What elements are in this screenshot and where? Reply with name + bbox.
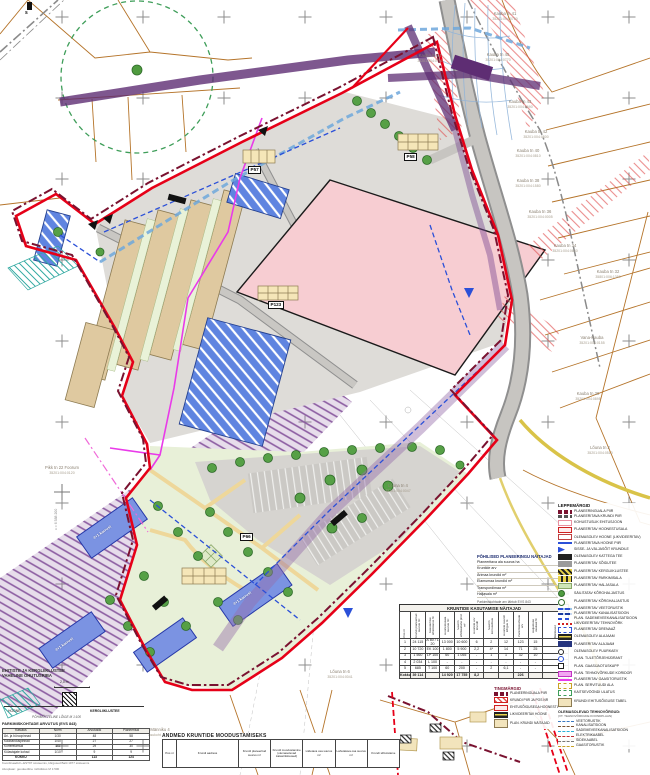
legend-label: PLANEERITAV DRENAAŽ	[574, 628, 615, 632]
usage-table: Pos nr Krundi planeeritud suurus m² Kasu…	[399, 611, 569, 679]
line-type-icon	[558, 746, 574, 747]
legend-row: PLANEERITAV GAASITORUSTIK	[558, 678, 650, 682]
legend-row: OLEMASOLEV HOONE (LIKVIDEERITAV)	[558, 534, 650, 540]
legend-swatch-icon	[558, 542, 572, 544]
line-type-icon	[558, 731, 574, 732]
stats-label: Transpordimaa m²	[477, 586, 506, 591]
legend-label: PLANEERITAV HOONESTUSALA	[574, 528, 627, 532]
legend-label: LIKVIDEERITAV TEHNOVÕRK	[574, 622, 623, 626]
stats-label: Kruntide arv	[477, 566, 496, 571]
legend-label: PLAN. SERVITUUDI ALA	[574, 684, 614, 688]
section-sketch: 2,0 m HOONE KERGLIIKLUSTEE PÕHIMÕTTELINE…	[2, 680, 152, 720]
legend-label: OLEMASOLEV ALAJAAM	[574, 635, 615, 639]
legend-label: PLANEERITAV GAASITORUSTIK	[574, 678, 627, 682]
legend-label: PLANEERITAV ALAJAAM	[574, 643, 614, 647]
plot-number-chip: P58	[404, 153, 417, 161]
usage-col-header: Parkimiskohtade arv	[513, 612, 528, 639]
legend-row: KRUNDI EHITUSÕIGUSE TABEL	[558, 698, 650, 707]
legend-row: PLANEERITAV HALJASALA	[558, 583, 650, 589]
line-type-icon	[558, 736, 574, 737]
legend-row: PLANEERITAV SÕIDUTEE	[558, 561, 650, 567]
legend-swatch-icon	[494, 712, 508, 718]
legend-label: OLEMASOLEV PUURKAEV	[574, 650, 618, 654]
legend-label: KOHUSTUSLIK EHITUSJOON	[574, 521, 622, 525]
legend-lines-subtitle: (VT. TEHNOVÕRKUDE KOONDPLAAN)	[558, 714, 650, 718]
usage-col-header: Hoonete arv krundil	[469, 612, 484, 639]
parking-table: KasutusNormArvutuslikPlaneeritud Äri- ja…	[2, 728, 150, 761]
ground-line	[4, 706, 144, 707]
legend-label: PLANEERITAV KÕRGHALJASTUS	[574, 600, 629, 604]
legend-swatch-icon	[558, 510, 572, 514]
sketch-caption: PÕHIMÕTTELINE LÕIGE M 1:100	[32, 715, 81, 719]
legend-swatch-icon	[558, 698, 572, 707]
parking-table-title: PARKIMISKOHTADE ARVUTUS (EVS 843)	[2, 722, 154, 726]
line-type-icon	[558, 721, 574, 722]
legend-lines-title: OLEMASOLEVAD TEHNOVÕRGUD:	[558, 710, 650, 714]
plan-sheet: { "colors":{"boundary_red":"#e60018","bo…	[0, 0, 650, 775]
legend-label: PLANEERITAV HALJASALA	[574, 584, 618, 588]
legend-label: KRUNDI EHITUSÕIGUSE TABEL	[574, 700, 627, 704]
usage-col-header: Suurim ehitisealune pind m²	[455, 612, 470, 639]
legend-label: PLANEERITAV SÕIDUTEE	[574, 562, 616, 566]
legend-swatch-icon	[558, 520, 572, 526]
legend-swatch-icon	[558, 554, 572, 560]
legend-label: PLANEERINGUALA PIIR	[510, 692, 547, 695]
formation-col-header: Krundi aadress	[177, 740, 239, 768]
legend-label: PLANEERINGUALA PIIR	[574, 510, 613, 514]
legend-swatch-icon	[558, 627, 572, 633]
usage-col-header: Krundi planeeritud suurus m²	[411, 612, 426, 639]
safety-note-line2: VAHELINE OHUTUSRIBA	[2, 673, 154, 678]
legend-swatch-icon	[558, 527, 572, 533]
legend-swatch-icon	[558, 690, 572, 696]
usage-total-row: Kokku39 11414 92017 7558,2226	[400, 672, 569, 678]
legend-swatch-icon	[558, 576, 572, 582]
legend-label: PLAN. GAASIJAOTUSKAPP	[574, 665, 619, 669]
legend-swatch-icon	[558, 618, 572, 620]
legend-row: PLANEERITAV PARKIMISALA	[558, 576, 650, 582]
line-type-icon	[558, 726, 574, 727]
legend-row: OLEMASOLEV KATTEGA TEE	[558, 554, 650, 560]
legend-row: OLEMASOLEV ALAJAAM	[558, 634, 650, 640]
legend-label: OLEMASOLEV HOONE (LIKVIDEERITAV)	[574, 536, 641, 540]
legend-swatch-icon	[558, 683, 572, 689]
legend-row: PLANEERITAV ALAJAAM	[558, 641, 650, 647]
plot-number-chip: P66	[240, 533, 253, 541]
legend-row: PLAN. SERVITUUDI ALA	[558, 683, 650, 689]
usage-col-header: Kasutamise sihtotstarve %	[425, 612, 440, 639]
legend-swatch-icon	[494, 692, 508, 696]
legend-label: PLANEERITAVA HOONE PIIR	[574, 542, 621, 546]
legend-swatch-icon	[558, 634, 572, 640]
legend-label: OLEMASOLEV KATTEGA TEE	[574, 555, 623, 559]
legend-label: PLANEERITAVA KRUNDI PIIR	[574, 515, 622, 519]
legend-swatch-icon	[558, 561, 572, 567]
legend-swatch-icon	[494, 705, 508, 711]
legend-row: KAITSEVÖÖNDI ULATUS	[558, 690, 650, 696]
plot-number-chip: P123	[268, 301, 284, 309]
legend-row: PLAN. TULETÕRJEHÜDRANT	[558, 656, 650, 662]
legend-label: PLAN. KRUNDI NÄITAJAD	[510, 722, 550, 725]
legend-swatch-icon	[558, 613, 572, 616]
legend-title: LEPPEMÄRGID	[558, 503, 650, 508]
usage-table-title: KRUNTIDE KASUTAMISE NÄITAJAD	[399, 604, 569, 611]
grid-coordinate-label: x = 6 588 200	[54, 509, 58, 530]
formation-col-header: Krundi planeeritud suurus m²	[238, 740, 270, 768]
usage-col-header: Hoonete suurim kõrgus m	[499, 612, 514, 639]
legend-line-row: SIDEKAABEL	[558, 739, 650, 743]
legend-swatch-icon	[558, 671, 572, 677]
legend-label: SISSE- JA VÄLJASÕIT KRUNDILE	[574, 548, 629, 552]
legend-panel: LEPPEMÄRGID PLANEERINGUALA PIIR PLANEERI…	[558, 503, 650, 749]
legend-row: PLANEERITAV KERGLIIKLUSTEE	[558, 569, 650, 575]
legend-label: PLANEERITAV PARKIMISALA	[574, 577, 622, 581]
safety-strip-note-block: EHITISTE JA KERGLIIKLUSTEE VAHELINE OHUT…	[2, 668, 154, 772]
formation-col-header: Krundi sihtotstarve	[367, 740, 399, 768]
legend-label: PLANEERITAV KERGLIIKLUSTEE	[574, 570, 628, 574]
dimension-line	[54, 687, 90, 688]
legend-row: PLANEERITAV DRENAAŽ	[558, 627, 650, 633]
sheet-corner-mark: s	[25, 10, 28, 16]
legend-row: PLANEERITAV KÕRGHALJASTUS	[558, 599, 650, 606]
legend-swatch-icon	[494, 719, 508, 728]
stats-label: Ärimaa krundid m²	[477, 573, 506, 578]
building-hatch-icon	[62, 692, 77, 707]
legend-swatch-icon	[558, 623, 572, 625]
usage-col-header: Hoonestusala suurus m²	[440, 612, 455, 639]
legend-swatch-icon	[558, 534, 572, 540]
plot-usage-table: KRUNTIDE KASUTAMISE NÄITAJAD Pos nr Krun…	[399, 604, 569, 679]
plot-number-chip: P57	[248, 166, 261, 174]
legend-line-row: ELEKTRIKAABEL	[558, 734, 650, 738]
formation-col-header: Krundi moodustamine (olemasolevad katast…	[271, 740, 303, 768]
plot-formation-table: ANDMED KRUNTIDE MOODUSTAMISEKS Pos nrKru…	[162, 733, 400, 768]
legend-swatch-icon	[558, 649, 564, 655]
legend-label: KAITSEVÖÖNDI ULATUS	[574, 691, 615, 695]
legend-swatch-icon	[558, 547, 565, 553]
legend-row: PLANEERITAV HOONESTUSALA	[558, 527, 650, 533]
legend-row: PLAN. TEHNOVÕRKUDE KORIDOR	[558, 671, 650, 677]
legend-swatch-icon	[558, 599, 565, 606]
legend-row: KOHUSTUSLIK EHITUSJOON	[558, 520, 650, 526]
legend-row: PLANEERITAVA KRUNDI PIIR	[558, 515, 650, 519]
plan-statistics-block: PÕHILISED PLANEERINGU NÄITAJAD Planeerit…	[477, 554, 569, 604]
legend-line-row: GAASITORUSTIK	[558, 744, 650, 748]
formation-col-header: Lahutatava osa suurus m²	[335, 740, 367, 768]
legend-row: OLEMASOLEV PUURKAEV	[558, 649, 650, 655]
legend-swatch-icon	[558, 656, 564, 662]
legend-swatch-icon	[494, 697, 508, 703]
stats-row: Haljasala m² 1 650	[477, 592, 569, 598]
stats-label: Planeeritava ala suurus ha	[477, 560, 520, 565]
legend-swatch-icon	[558, 590, 565, 597]
stats-label: Haljasala m²	[477, 592, 497, 597]
legend-swatch-icon	[558, 641, 572, 647]
legend-label: PLAN. TEHNOVÕRKUDE KORIDOR	[574, 672, 632, 676]
parking-total-row: KOKKU113124	[3, 755, 150, 760]
legend-swatch-icon	[558, 569, 572, 575]
usage-col-header: Pos nr	[400, 612, 411, 639]
legend-row: PLAN. GAASIJAOTUSKAPP	[558, 663, 650, 669]
sketch-left-label: HOONE	[8, 709, 20, 713]
legend-swatch-icon	[558, 608, 572, 611]
legend-label: SÄILITATAV KÕRGHALJASTUS	[574, 592, 624, 596]
legend-swatch-icon	[558, 515, 572, 518]
legend-swatch-icon	[558, 663, 564, 669]
stats-title: PÕHILISED PLANEERINGU NÄITAJAD	[477, 554, 569, 559]
legend-label: PLAN. TULETÕRJEHÜDRANT	[574, 657, 623, 661]
legend-row: SÄILITATAV KÕRGHALJASTUS	[558, 590, 650, 597]
usage-col-header: Suurim korruselisus	[484, 612, 499, 639]
legend-row: LIKVIDEERITAV TEHNOVÕRK	[558, 622, 650, 626]
legend-row: PLANEERITAVA HOONE PIIR	[558, 542, 650, 546]
legend-line-row: SADEMEVEEKANALISATSIOON	[558, 729, 650, 733]
legend-label: GAASITORUSTIK	[576, 744, 604, 748]
legend-row: PLANEERINGUALA PIIR	[558, 510, 650, 514]
legend-row: SISSE- JA VÄLJASÕIT KRUNDILE	[558, 547, 650, 553]
formation-table: Pos nrKrundi aadressKrundi planeeritud s…	[162, 739, 400, 768]
legend-swatch-icon	[558, 583, 572, 589]
usage-col-header: Haljastuse osakaal %	[528, 612, 543, 639]
base-note-1: Koordinaadid L-EST97 süsteemis, kõrgused…	[2, 762, 154, 766]
dimension-label: 2,0 m	[60, 680, 68, 684]
sketch-right-label: KERGLIIKLUSTEE	[90, 709, 120, 713]
legend-swatch-icon	[558, 679, 572, 681]
legend-label: LIKVIDEERITAV HOONE	[510, 713, 547, 716]
formation-col-header: Liidetava osa suurus m²	[303, 740, 335, 768]
legend-label: KRUNDI PIIR JA POS NR	[510, 699, 548, 702]
stats-label: Elamumaa krundid m²	[477, 579, 512, 584]
usage-row: 124 115Ä 80 / L 20 13 00010 6006 212123 …	[400, 639, 569, 647]
line-type-icon	[558, 741, 574, 742]
base-note-2: Alusplaan: geodeetiline mõõdistus M 1:50…	[2, 768, 154, 772]
formation-col-header: Pos nr	[163, 740, 177, 768]
